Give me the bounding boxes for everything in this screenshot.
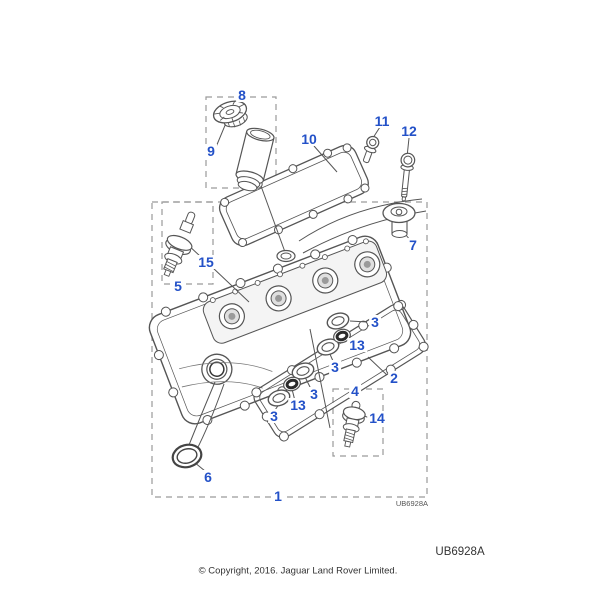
callout-11[interactable]: 11: [373, 114, 392, 128]
callout-12[interactable]: 12: [399, 124, 419, 138]
callout-10[interactable]: 10: [299, 132, 319, 146]
callout-8[interactable]: 8: [236, 88, 248, 102]
callout-14[interactable]: 14: [367, 411, 387, 425]
exploded-cam-cover-drawing: [0, 0, 600, 600]
bolt-11: [360, 135, 381, 164]
drawing-code-small: UB6928A: [396, 499, 428, 508]
callout-13-1[interactable]: 13: [347, 338, 367, 352]
callout-15[interactable]: 15: [196, 255, 216, 269]
spark-plug-14: [336, 399, 367, 449]
drawing-code: UB6928A: [435, 546, 484, 558]
parts-diagram-page: 1 2 3 3 3 3 4 5 6 7 8 9 10 11 12 13 13 1…: [0, 0, 600, 600]
callout-13-2[interactable]: 13: [288, 398, 308, 412]
callout-5[interactable]: 5: [172, 279, 184, 293]
callout-3-4[interactable]: 3: [268, 409, 280, 423]
callout-3-2[interactable]: 3: [329, 360, 341, 374]
callout-4[interactable]: 4: [349, 384, 361, 398]
grommet-7: [383, 204, 415, 238]
callout-9[interactable]: 9: [205, 144, 217, 158]
callout-3-1[interactable]: 3: [369, 315, 381, 329]
cover-gasket-10: [215, 139, 374, 252]
callout-7[interactable]: 7: [407, 238, 419, 252]
callout-1[interactable]: 1: [272, 489, 284, 503]
callout-3-3[interactable]: 3: [308, 387, 320, 401]
callout-6[interactable]: 6: [202, 470, 214, 484]
copyright-notice: © Copyright, 2016. Jaguar Land Rover Lim…: [199, 566, 398, 577]
callout-2[interactable]: 2: [388, 371, 400, 385]
filler-neck-opening: [277, 251, 295, 262]
bolt-12: [397, 153, 416, 202]
